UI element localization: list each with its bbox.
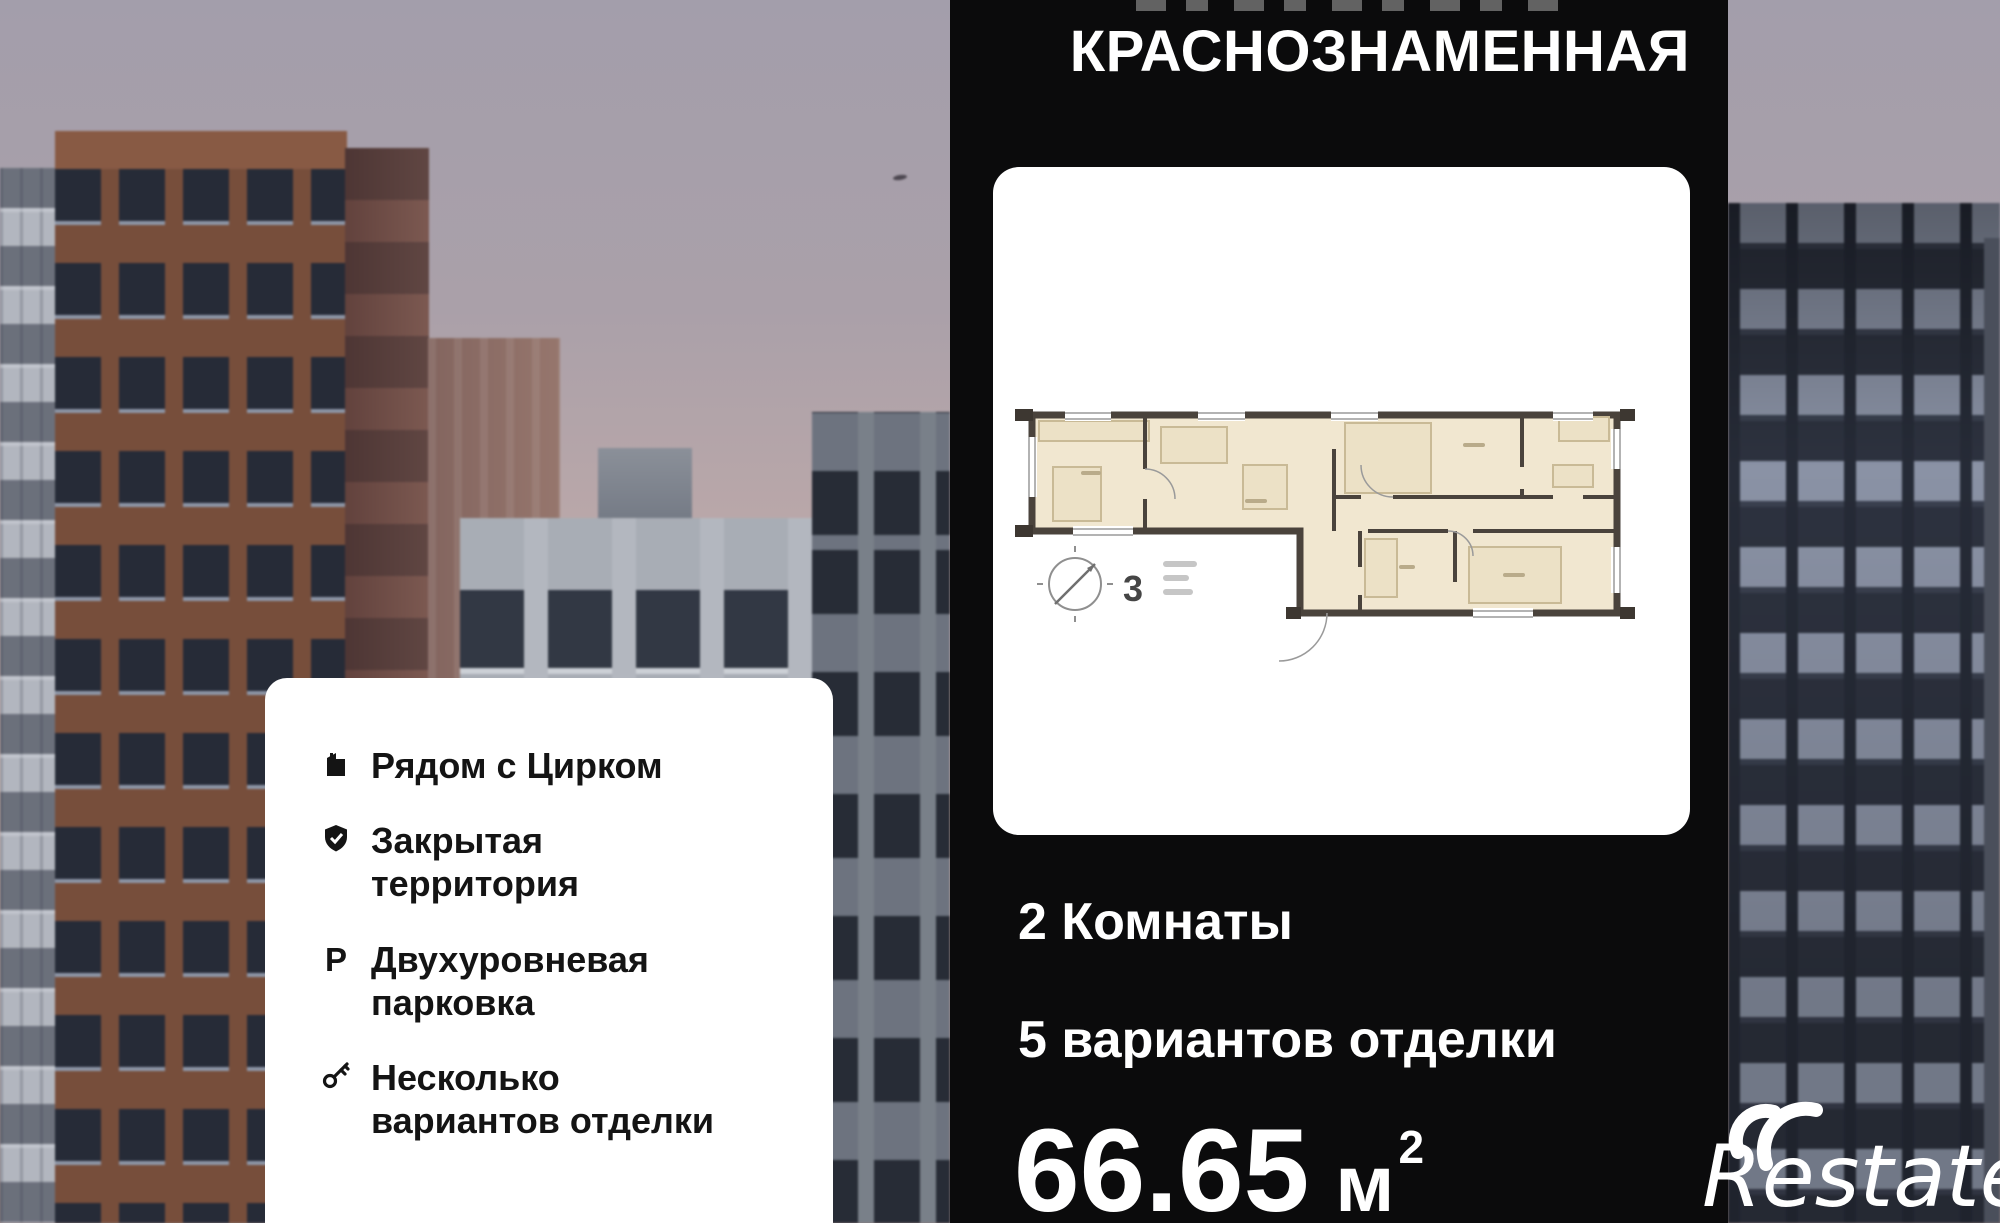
dark-panel: КРАСНОЗНАМЕННАЯ <box>950 0 1728 1223</box>
cropped-title-fragment <box>1136 0 1572 11</box>
feature-label: Рядом с Цирком <box>371 744 663 787</box>
feature-item-finishing: Несколько вариантов отделки <box>321 1056 793 1142</box>
floorplan-spec-lines <box>1163 561 1197 595</box>
feature-item-parking: Р Двухуровневая парковка <box>321 938 793 1024</box>
background-building-right-edge <box>1984 238 2000 1223</box>
feature-label: Несколько вариантов отделки <box>371 1056 714 1142</box>
compass-icon <box>1037 546 1113 622</box>
feature-item-closed-territory: Закрытая территория <box>321 819 793 905</box>
logo-text: Restate <box>1702 1127 2000 1223</box>
background-rooftop-box <box>598 448 692 522</box>
parking-glyph: Р <box>325 943 347 976</box>
area-value-block: 66.65 м 2 <box>1014 1112 1424 1223</box>
background-building-glass <box>0 168 60 1223</box>
feature-label: Двухуровневая парковка <box>371 938 649 1024</box>
background-building-brown-roofband <box>55 131 347 171</box>
key-icon <box>321 1061 351 1089</box>
restate-logo: Restate <box>1700 1090 2000 1223</box>
area-unit: м <box>1335 1144 1394 1223</box>
feature-item-circus: Рядом с Цирком <box>321 744 793 787</box>
building-icon <box>321 749 351 777</box>
features-card: Рядом с Цирком Закрытая территория Р Дву… <box>265 678 833 1223</box>
feature-label: Закрытая территория <box>371 819 579 905</box>
finishing-options: 5 вариантов отделки <box>1018 1010 1557 1070</box>
real-estate-ad-banner[interactable]: КРАСНОЗНАМЕННАЯ <box>0 0 2000 1223</box>
shield-check-icon <box>321 824 351 853</box>
floorplan-card: 3 <box>993 167 1690 835</box>
rooms-count: 2 Комнаты <box>1018 892 1293 952</box>
bird-silhouette <box>893 174 908 181</box>
area-unit-superscript: 2 <box>1398 1124 1424 1170</box>
area-value: 66.65 <box>1014 1112 1309 1223</box>
complex-name: КРАСНОЗНАМЕННАЯ <box>1070 18 1690 85</box>
background-building-right <box>1728 203 2000 1223</box>
parking-icon: Р <box>321 943 351 976</box>
floorplan-room-count-label: 3 <box>1123 568 1143 609</box>
floorplan-svg: 3 <box>993 167 1690 835</box>
